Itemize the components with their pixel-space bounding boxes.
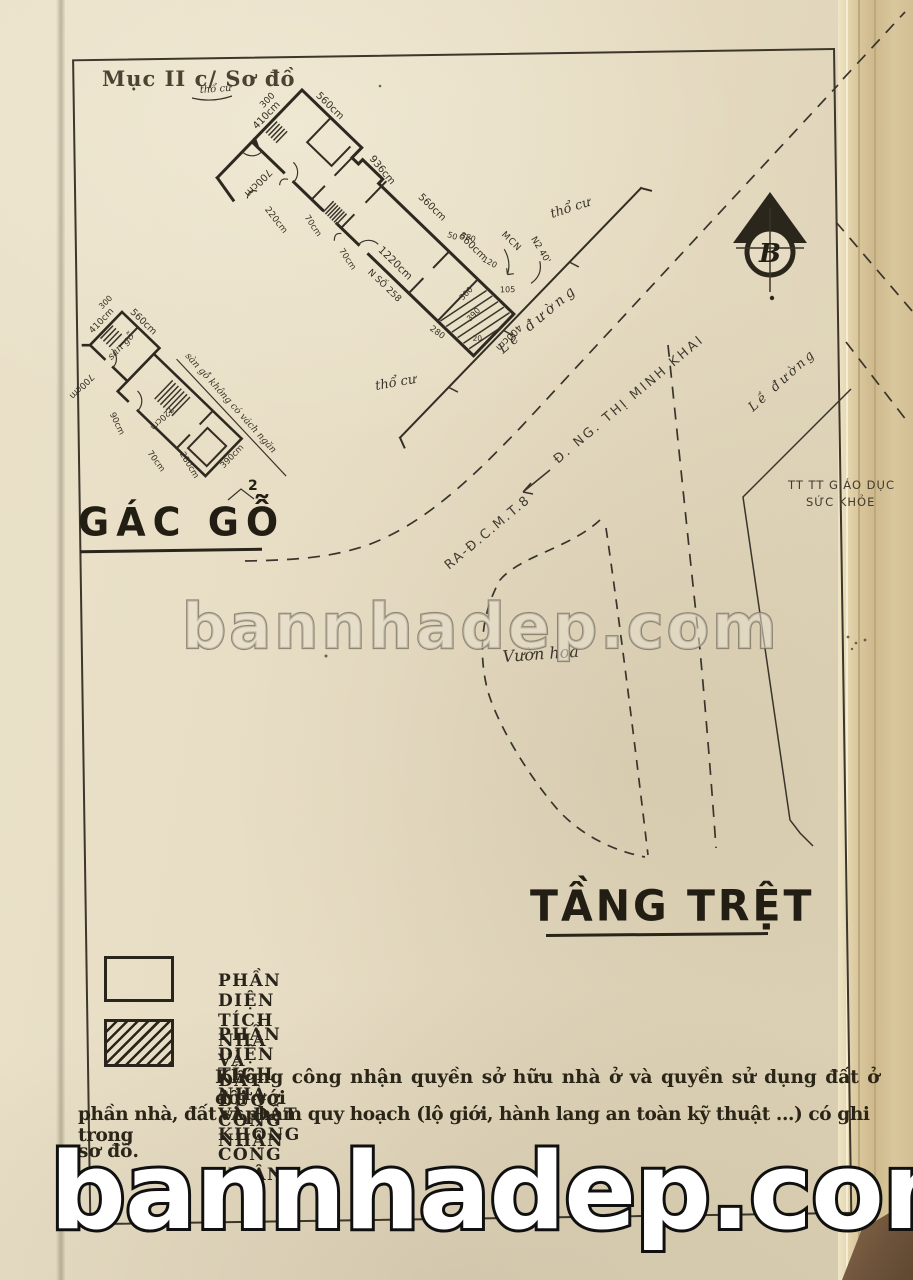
mz-dim-720: 720cm (148, 404, 175, 432)
compass-dot (770, 296, 774, 300)
street-name-label: Đ. NG. THỊ MINH KHAI (551, 332, 708, 467)
header-underline-squiggle (192, 96, 232, 100)
mcn-label: MCN (499, 230, 523, 254)
mz-dim-300: 300 (97, 294, 114, 311)
tho-cu-label-2: thổ cư (374, 371, 419, 394)
side-street-line (668, 345, 716, 848)
dim-n50: 50 (446, 230, 459, 242)
le-duong-label-2: Lề đường (744, 346, 819, 416)
gac-go-title: GÁC GỖ (78, 500, 285, 545)
header-note: thổ cư (199, 82, 233, 96)
tt-giao-duc-line1: TT TT GIÁO DỤC (787, 477, 895, 492)
dim-n390: 390 (465, 306, 482, 323)
mz-dim-280: 280cm (177, 450, 201, 480)
note-line-2: phần nhà, đất vi phạm quy hoạch (lộ giới… (78, 1104, 913, 1146)
garden-island-left-edge (482, 520, 645, 857)
compass-north-letter: B (758, 239, 781, 269)
dim-560-upper: 560cm (416, 192, 448, 224)
ra-cmt8-label: RA-Đ.C.M.T.8 (442, 493, 534, 574)
garden-island-right-edge (606, 528, 648, 855)
fold-street-dash-a (836, 222, 913, 312)
dim-220-door: 220cm (262, 205, 289, 236)
mz-dim-70: 70cm (145, 449, 167, 474)
note-line-1: Không công nhận quyền sở hữu nhà ở và qu… (215, 1067, 913, 1109)
dim-700-left: 700cm (242, 166, 274, 198)
dim-70-door-b: 70cm (336, 247, 358, 272)
tang-tret-title: TẦNG TRỆT (530, 881, 814, 931)
tt-giao-duc-line2: SỨC KHỎE (806, 493, 875, 509)
fold-street-dash-b (846, 342, 910, 425)
mz-dim-700: 700cm (67, 371, 96, 400)
dim-70-door-a: 70cm (302, 213, 324, 238)
mz-dim-90: 90cm (107, 411, 126, 437)
cmt8-direction-arrow (523, 470, 550, 494)
dim-n105: 105 (500, 285, 515, 294)
dim-n120: 120 (481, 255, 499, 270)
legend-swatch-not-recognized (104, 1019, 174, 1067)
n2-40-label: N2 40' (528, 235, 552, 265)
corner-lot-boundary (743, 389, 851, 846)
stairs-hatch-corridor (323, 201, 346, 224)
tho-cu-label-1: thổ cư (548, 193, 594, 221)
scanned-cadastral-document: Mục II c/ Sơ đồ thổ cư 560cm (0, 0, 913, 1280)
legend-swatch-recognized (104, 956, 174, 1002)
dim-n20: 20 (472, 334, 482, 343)
mezzanine-stairs-hatch (96, 324, 190, 416)
gac-go-superscript: 2 (248, 478, 258, 494)
vuon-hoa-label: Vườn hoa (502, 642, 579, 666)
note-line-3: sơ đồ. (78, 1141, 139, 1162)
compass-north-symbol: B (733, 192, 807, 300)
